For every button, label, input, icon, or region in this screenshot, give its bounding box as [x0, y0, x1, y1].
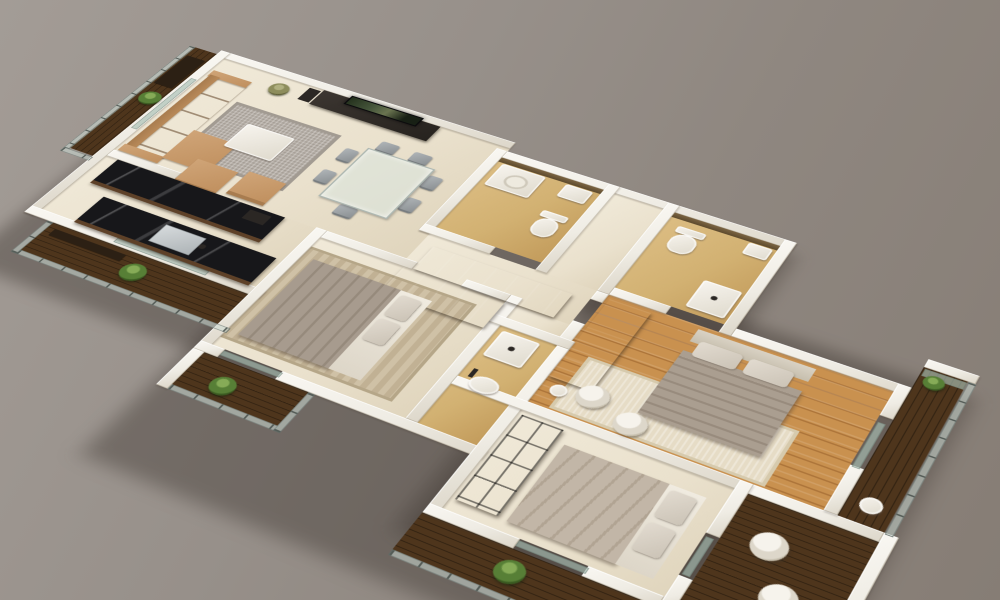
scene-backdrop	[0, 0, 1000, 600]
apartment-model	[0, 42, 1000, 600]
